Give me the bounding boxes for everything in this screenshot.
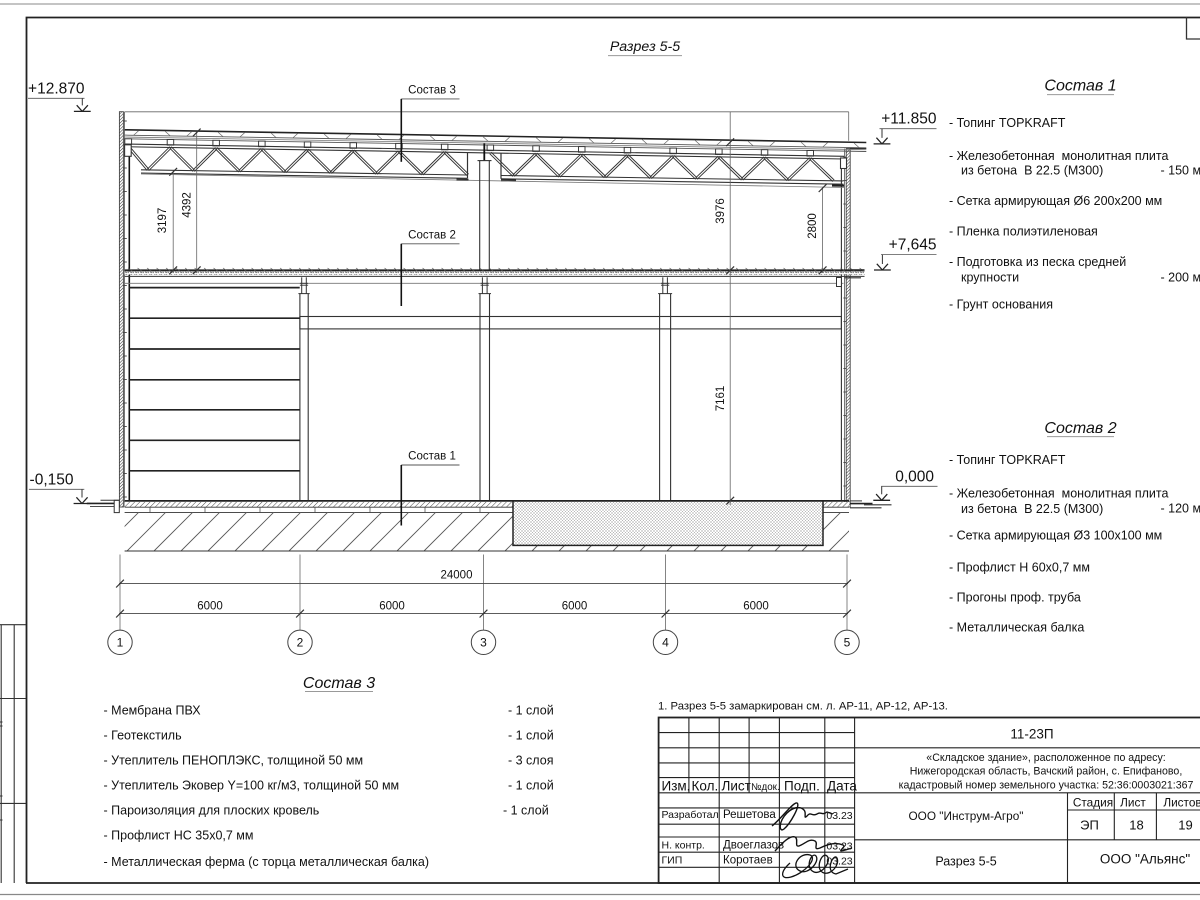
svg-text:Кол.: Кол. — [692, 779, 719, 794]
svg-text:Состав 3: Состав 3 — [303, 675, 375, 692]
svg-text:Состав 2: Состав 2 — [408, 230, 456, 242]
svg-text:03.23: 03.23 — [826, 810, 852, 822]
svg-text:- Прогоны проф. труба: - Прогоны проф. труба — [949, 591, 1081, 605]
svg-text:- 3 слоя: - 3 слоя — [508, 754, 553, 768]
svg-text:- 120 мм: - 120 мм — [1161, 502, 1200, 516]
svg-text:Нижегородская область, Вачский: Нижегородская область, Вачский район, с.… — [910, 766, 1183, 778]
svg-text:«Складское здание», расположен: «Складское здание», расположенное по адр… — [926, 752, 1165, 764]
svg-text:Лист: Лист — [1120, 795, 1146, 809]
svg-text:- Геотекстиль: - Геотекстиль — [104, 729, 182, 743]
svg-text:- Подготовка из песка средней: - Подготовка из песка средней — [949, 255, 1126, 269]
svg-text:3976: 3976 — [715, 198, 727, 224]
svg-text:6000: 6000 — [197, 601, 223, 613]
svg-text:1: 1 — [117, 636, 124, 650]
svg-text:+11.850: +11.850 — [881, 111, 937, 128]
svg-text:крупности: крупности — [961, 271, 1019, 285]
svg-text:ЭП: ЭП — [1080, 818, 1099, 833]
svg-text:Двоеглазов: Двоеглазов — [723, 840, 784, 852]
svg-text:- Сетка армирующая Ø3 100х100: - Сетка армирующая Ø3 100х100 мм — [949, 529, 1162, 543]
svg-text:2800: 2800 — [807, 213, 819, 239]
svg-text:-0,150: -0,150 — [30, 471, 74, 488]
svg-text:- 200 мм: - 200 мм — [1161, 271, 1200, 285]
svg-text:5: 5 — [844, 636, 851, 650]
svg-text:Решетова: Решетова — [723, 809, 776, 821]
svg-text:- 1 слой: - 1 слой — [508, 729, 554, 743]
svg-text:Разрез 5-5: Разрез 5-5 — [935, 855, 996, 869]
svg-text:Изм.: Изм. — [662, 779, 691, 794]
svg-text:6000: 6000 — [562, 601, 588, 613]
svg-text:+7,645: +7,645 — [889, 237, 937, 254]
svg-text:- Железобетонная монолитная п: - Железобетонная монолитная плита — [949, 487, 1168, 501]
svg-text:4: 4 — [662, 636, 669, 650]
svg-text:ООО "Инструм-Агро": ООО "Инструм-Агро" — [908, 809, 1023, 823]
svg-text:- Сетка армирующая Ø6 200х200: - Сетка армирующая Ø6 200х200 мм — [949, 194, 1162, 208]
svg-text:- Пленка полиэтиленовая: - Пленка полиэтиленовая — [949, 225, 1098, 239]
svg-text:Листов: Листов — [1163, 795, 1200, 809]
svg-text:- 1 слой: - 1 слой — [503, 804, 549, 818]
svg-text:- 1 слой: - 1 слой — [508, 704, 554, 718]
svg-text:18: 18 — [1129, 818, 1143, 833]
svg-text:- Мембрана ПВХ: - Мембрана ПВХ — [104, 704, 202, 718]
svg-text:03.23: 03.23 — [826, 841, 852, 853]
svg-text:+12.870: +12.870 — [28, 80, 85, 97]
svg-text:из бетона В 22.5 (М300): из бетона В 22.5 (М300) — [961, 164, 1103, 178]
svg-text:- Металлическая ферма (с торца: - Металлическая ферма (с торца металличе… — [104, 855, 430, 869]
svg-text:- 150 мм: - 150 мм — [1161, 164, 1200, 178]
svg-text:- Топинг TOPKRAFT: - Топинг TOPKRAFT — [949, 116, 1066, 130]
svg-text:ООО "Альянс": ООО "Альянс" — [1100, 852, 1190, 867]
svg-text:0,000: 0,000 — [895, 468, 934, 485]
svg-text:кадастровый номер земельного у: кадастровый номер земельного участка: 52… — [899, 779, 1194, 791]
svg-text:6000: 6000 — [743, 601, 769, 613]
svg-text:из бетона В 22.5 (М300): из бетона В 22.5 (М300) — [961, 502, 1103, 516]
svg-text:- Грунт основания: - Грунт основания — [949, 298, 1053, 312]
svg-text:- Профлист НС 35х0,7 мм: - Профлист НС 35х0,7 мм — [104, 829, 254, 843]
svg-text:- Утеплитель Эковер Y=100 кг/м: - Утеплитель Эковер Y=100 кг/м3, толщино… — [104, 779, 400, 793]
svg-text:Лист: Лист — [722, 779, 751, 794]
svg-text:№док.: №док. — [751, 782, 780, 793]
svg-text:Состав 1: Состав 1 — [1044, 78, 1116, 95]
svg-text:- 1 слой: - 1 слой — [508, 779, 554, 793]
svg-text:Состав 3: Состав 3 — [408, 85, 456, 97]
svg-text:Разрез 5-5: Разрез 5-5 — [610, 39, 680, 55]
svg-text:4392: 4392 — [182, 192, 194, 218]
svg-text:- Утеплитель ПЕНОПЛЭКС, толщин: - Утеплитель ПЕНОПЛЭКС, толщиной 50 мм — [104, 754, 364, 768]
svg-text:Н. контр.: Н. контр. — [662, 840, 705, 852]
svg-text:- Профлист Н 60х0,7 мм: - Профлист Н 60х0,7 мм — [949, 561, 1090, 575]
svg-text:19: 19 — [1178, 818, 1192, 833]
svg-text:ГИП: ГИП — [662, 855, 683, 867]
svg-text:1. Разрез 5-5 замаркирован см.: 1. Разрез 5-5 замаркирован см. л. АР-11,… — [658, 701, 948, 713]
svg-text:- Металлическая балка: - Металлическая балка — [949, 621, 1084, 635]
svg-text:Разработал: Разработал — [662, 809, 719, 821]
svg-text:Стадия: Стадия — [1073, 795, 1113, 809]
svg-text:Состав 2: Состав 2 — [1044, 420, 1116, 437]
svg-text:- Железобетонная монолитная п: - Железобетонная монолитная плита — [949, 149, 1168, 163]
svg-text:- Пароизоляция для плоских кро: - Пароизоляция для плоских кровель — [104, 804, 320, 818]
svg-text:Коротаев: Коротаев — [723, 855, 773, 867]
svg-text:Состав 1: Состав 1 — [408, 451, 456, 463]
svg-text:24000: 24000 — [441, 570, 473, 582]
svg-text:Подп.: Подп. — [784, 779, 820, 794]
svg-text:6000: 6000 — [379, 601, 405, 613]
svg-text:Дата: Дата — [827, 779, 857, 794]
svg-text:- Топинг TOPKRAFT: - Топинг TOPKRAFT — [949, 453, 1066, 467]
svg-text:2: 2 — [297, 636, 304, 650]
svg-text:3197: 3197 — [157, 208, 169, 234]
svg-text:11-23П: 11-23П — [1010, 727, 1053, 742]
svg-text:3: 3 — [480, 636, 487, 650]
svg-text:7161: 7161 — [715, 386, 727, 412]
